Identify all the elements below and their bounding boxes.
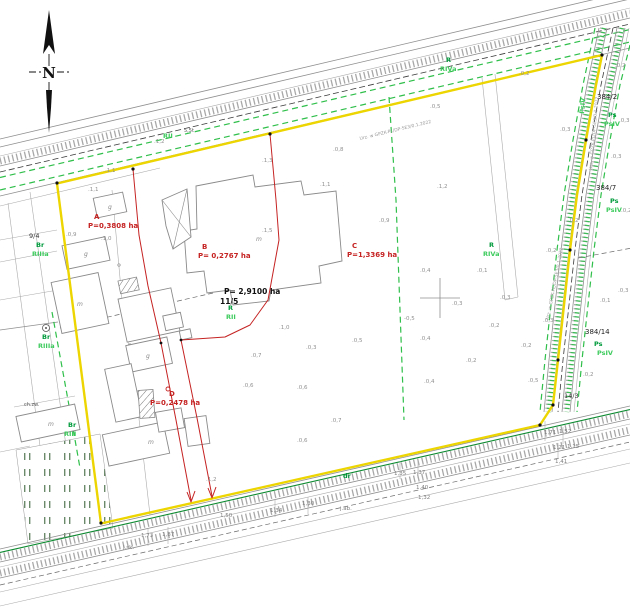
soil-label: R — [489, 241, 494, 249]
dimension-label: 1,71 — [544, 430, 556, 436]
spot-height: .0,6 — [243, 383, 254, 389]
spot-height: .0,3 — [619, 118, 630, 124]
spot-height: .0,9 — [379, 218, 390, 224]
spot-height: -0,5 — [404, 316, 415, 322]
building-use-label: g — [146, 353, 150, 360]
spot-height: .0,1 — [477, 268, 488, 274]
spot-height: .0,3 — [560, 127, 571, 133]
spot-height: .0,5 — [528, 378, 539, 384]
parcel-115-area: P= 2,9100 ha — [224, 287, 280, 296]
soil-class: PsIV — [606, 206, 622, 214]
building-use-label: g — [108, 204, 112, 211]
building-use-label: g — [84, 251, 88, 258]
building-use-label: m — [148, 439, 154, 446]
soil-class: RIIIa — [38, 342, 55, 350]
dimension-label: 1,52 — [559, 429, 571, 435]
soil-label: R — [446, 56, 451, 64]
parcel-b-area: P= 0,2767 ha — [198, 252, 251, 260]
dimension-label: 1,87 — [162, 532, 175, 538]
spot-height: .0,2 — [489, 323, 500, 329]
building-use-label: m — [77, 301, 83, 308]
spot-height: .0,2 — [519, 71, 530, 77]
spot-height: .1,3 — [262, 158, 273, 164]
parcel-d-letter: D — [169, 390, 175, 398]
dimension-label: 1,15 — [567, 444, 580, 450]
spot-height: .1,0 — [279, 325, 290, 331]
dimension-label: 1,35 — [394, 471, 407, 477]
soil-class: RIVa — [440, 65, 457, 73]
well-symbol — [43, 325, 50, 332]
spot-height: .0,3 — [543, 318, 554, 324]
parcel-14-3: 14/3 — [564, 392, 579, 400]
soil-class-rotated: PsIV — [578, 98, 587, 115]
spot-height: .0,5 — [352, 338, 363, 344]
spot-height: .0,3 — [618, 288, 629, 294]
dimension-label: 1,37 — [413, 470, 426, 476]
soil-label: Br — [42, 333, 51, 341]
spot-height: .0,9 — [66, 232, 77, 238]
parcel-b-letter: B — [202, 243, 207, 251]
spot-height: .0,1 — [600, 298, 611, 304]
soil-class: RIIIa — [32, 250, 49, 258]
dimension-label: 1,34 — [270, 508, 283, 514]
dimension-label: 1,32 — [418, 495, 430, 501]
spot-height: .0,7 — [331, 418, 342, 424]
pasture-symbol-area — [16, 434, 113, 544]
map-canvas: N AP=0,3808 haBP= 0,2767 haCP=1,3369 haD… — [0, 0, 630, 614]
spot-height: .0,5 — [430, 104, 441, 110]
spot-height: .0,2 — [568, 218, 579, 224]
dimension-label: 1,41 — [555, 459, 567, 465]
spot-height: .0,3 — [306, 345, 317, 351]
spot-height: .0,2 — [583, 372, 594, 378]
parcel-384-14: 384/14 — [585, 328, 610, 336]
spot-height: .1,2 — [154, 139, 165, 145]
dimension-label: 1,30 — [302, 501, 315, 507]
dimension-label: 1,21 — [553, 445, 565, 451]
spot-height: .0,7 — [251, 353, 262, 359]
dimension-label: j.sk. — [122, 545, 134, 551]
dimension-label: j.ab. — [339, 506, 352, 512]
parcel-a-area: P=0,3808 ha — [88, 222, 138, 230]
spot-height: .1,0 — [101, 236, 112, 242]
soil-class: PsIV — [604, 120, 620, 128]
road-sign-label: 5,5t — [184, 128, 194, 134]
soil-class: RII — [226, 313, 236, 321]
spot-height: .0,3 — [452, 301, 463, 307]
dimension-label: 1,50 — [220, 513, 233, 519]
spot-height: .1,2 — [206, 477, 217, 483]
spot-height: .0,8 — [333, 147, 344, 153]
spot-height: .0,4 — [424, 379, 435, 385]
parcel-384-7: 384/7 — [596, 184, 616, 192]
spot-height: .0,2 — [546, 248, 557, 254]
soil-class: PsIV — [597, 349, 613, 357]
dimension-label: 1,40 — [416, 485, 429, 491]
soil-class: RIII — [64, 430, 76, 438]
surface-label: ch.zw. — [24, 402, 40, 408]
soil-label: Br — [68, 421, 77, 429]
soil-label: Br — [36, 241, 45, 249]
dimension-label: 1,73 — [141, 533, 154, 539]
spot-height: .1,1 — [105, 168, 116, 174]
spot-height: .1,1 — [88, 187, 99, 193]
spot-height: .1,1 — [320, 182, 331, 188]
spot-height: .0,3 — [611, 154, 622, 160]
spot-height: .0,2 — [621, 208, 630, 214]
parcel-a-letter: A — [94, 213, 100, 221]
north-label: N — [42, 64, 56, 82]
soil-label: R — [228, 304, 233, 312]
road-use-label: dr — [343, 472, 352, 480]
soil-label: Ps — [594, 340, 603, 348]
spot-height: .0,4 — [420, 336, 431, 342]
spot-height: .0,2 — [615, 63, 626, 69]
spot-height: .1,5 — [262, 228, 273, 234]
spot-height: .0,2 — [521, 343, 532, 349]
parcel-c-letter: C — [352, 242, 357, 250]
spot-height: .0,6 — [297, 385, 308, 391]
building-use-label: m — [256, 236, 262, 243]
map-page: N AP=0,3808 haBP= 0,2767 haCP=1,3369 haD… — [0, 0, 630, 614]
parcel-d-area: P=0,2478 ha — [150, 399, 200, 407]
spot-height: .0,2 — [466, 358, 477, 364]
soil-label: Ps — [608, 111, 617, 119]
spot-height: .0,6 — [297, 438, 308, 444]
parcel-c-area: P=1,3369 ha — [347, 251, 397, 259]
spot-height: .1,2 — [437, 184, 448, 190]
soil-label: Ps — [610, 197, 619, 205]
spot-height: .0,3 — [500, 295, 511, 301]
building-use-label: m — [48, 421, 54, 428]
parcel-9-4: 9/4 — [29, 232, 39, 240]
spot-height: .0,4 — [420, 268, 431, 274]
soil-class: RIVa — [483, 250, 500, 258]
